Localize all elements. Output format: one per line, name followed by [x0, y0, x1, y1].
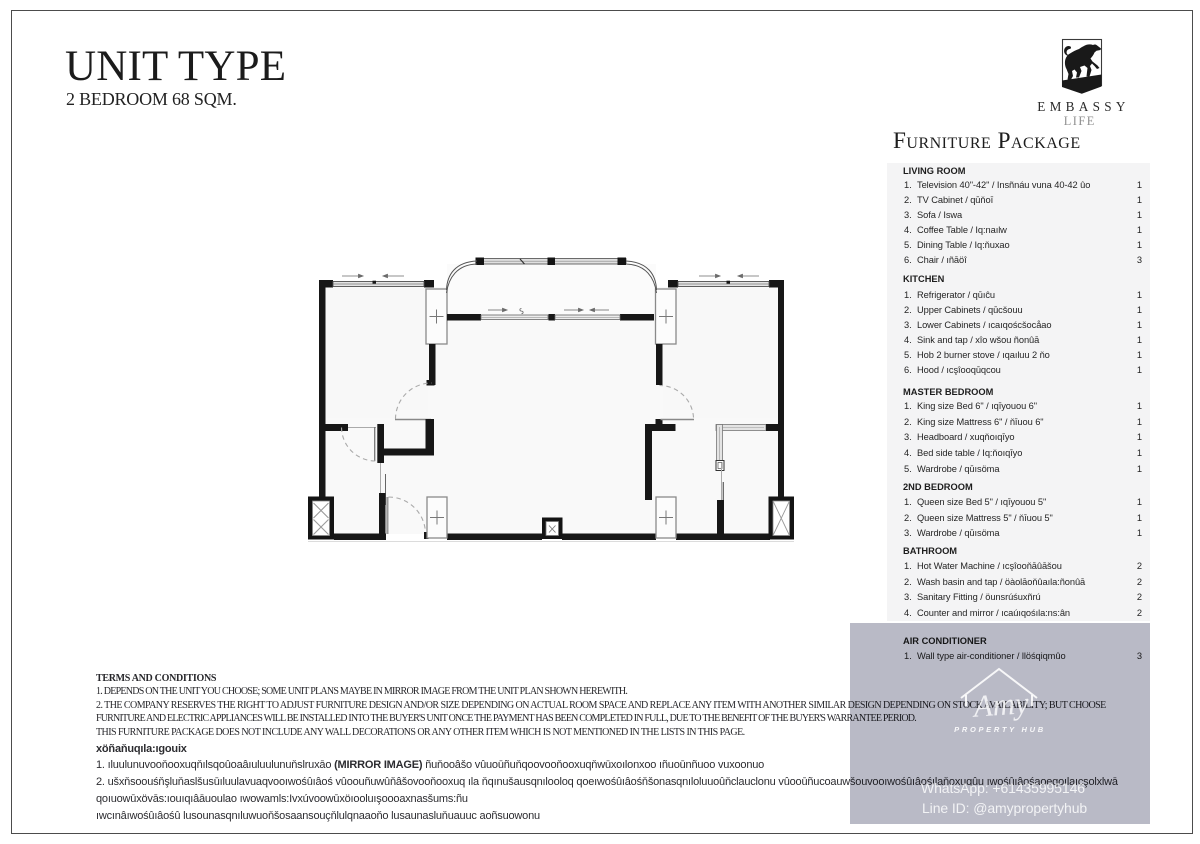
- svg-text:Amy: Amy: [970, 685, 1030, 724]
